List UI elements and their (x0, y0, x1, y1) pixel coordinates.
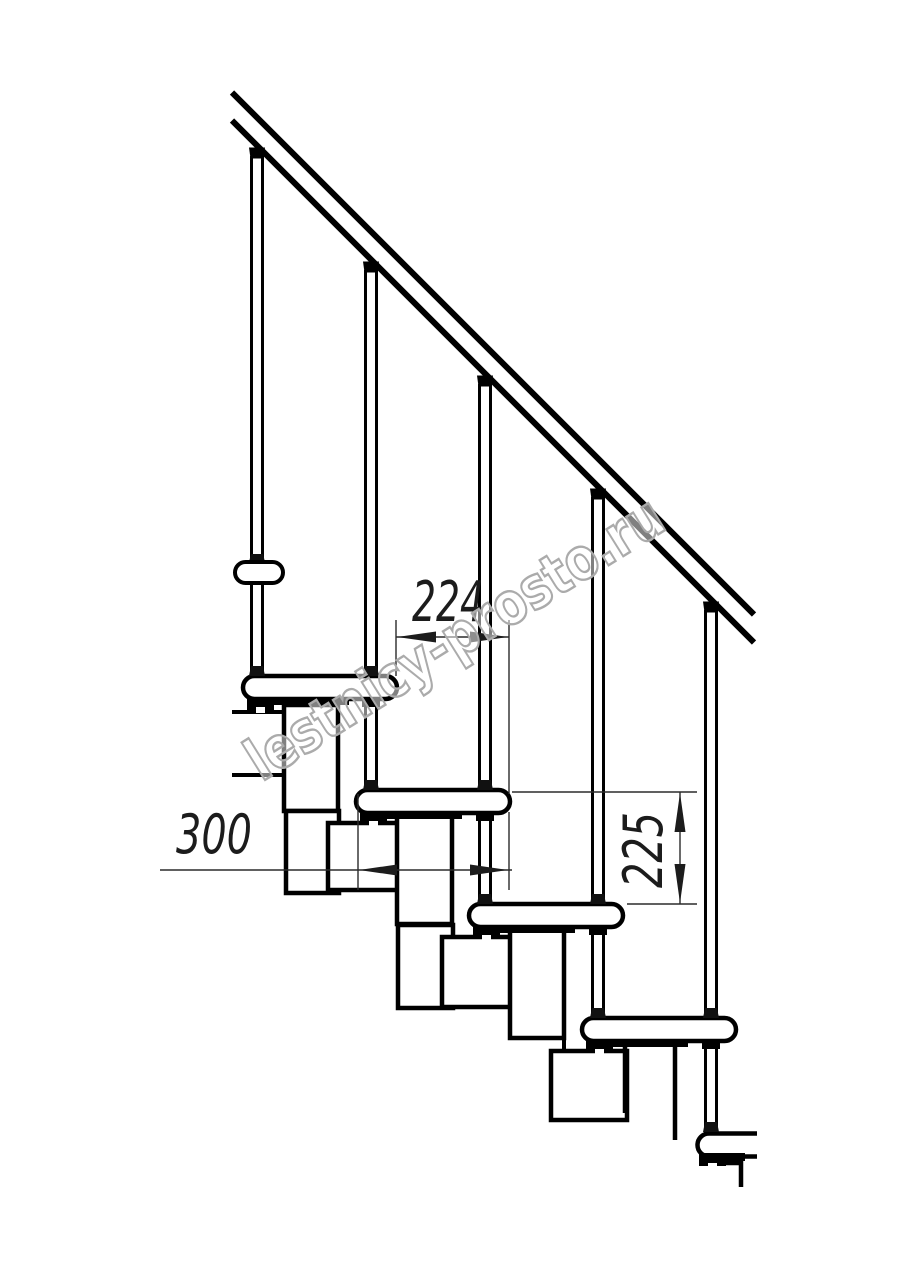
collar-b3-tread2 (477, 780, 493, 790)
staircase-technical-drawing: 224 300 225 lestnicy-prosto.ru (0, 0, 914, 1280)
collar-b5-tread4 (703, 1008, 719, 1018)
collar-b2-tread2 (363, 780, 379, 790)
tread-5-mount (699, 1153, 745, 1169)
collar-b4-tread3 (590, 894, 606, 904)
module4-clamp-box (551, 1051, 627, 1120)
rail-connector-5 (703, 602, 719, 613)
staircase-drawing-page: 224 300 225 lestnicy-prosto.ru (0, 0, 914, 1280)
collar-b1-tread1 (249, 666, 265, 676)
watermark-text: lestnicy-prosto.ru (233, 482, 676, 794)
module2-tube (397, 809, 452, 924)
rail-connector-1 (249, 148, 265, 159)
collar-b4-tread4 (590, 1008, 606, 1018)
rail-connector-4 (590, 489, 606, 500)
handrail (232, 93, 754, 643)
baluster-5 (704, 610, 718, 1134)
rail-connector-3 (477, 376, 493, 387)
baluster1-collar-bar (235, 554, 283, 583)
tread-3 (469, 904, 623, 927)
tread-2 (356, 790, 510, 813)
dim-label-225: 225 (612, 812, 675, 888)
tread-4 (582, 1018, 736, 1041)
module3-tube (510, 924, 564, 1038)
handrail-bottom-edge (232, 121, 754, 643)
handrail-body (232, 95, 754, 640)
module2-clamp-box (328, 823, 403, 890)
rail-connector-2 (363, 262, 379, 273)
collar-b5-tread5 (703, 1122, 719, 1132)
collar-b3-tread3 (477, 894, 493, 904)
module3-clamp-box (442, 937, 518, 1007)
baluster-1 (250, 156, 264, 678)
arrow-down (675, 864, 686, 903)
dim-label-300: 300 (176, 803, 252, 866)
module5-clamp-partial (717, 1163, 741, 1187)
arrow-up (675, 793, 686, 832)
handrail-top-edge (232, 93, 754, 615)
